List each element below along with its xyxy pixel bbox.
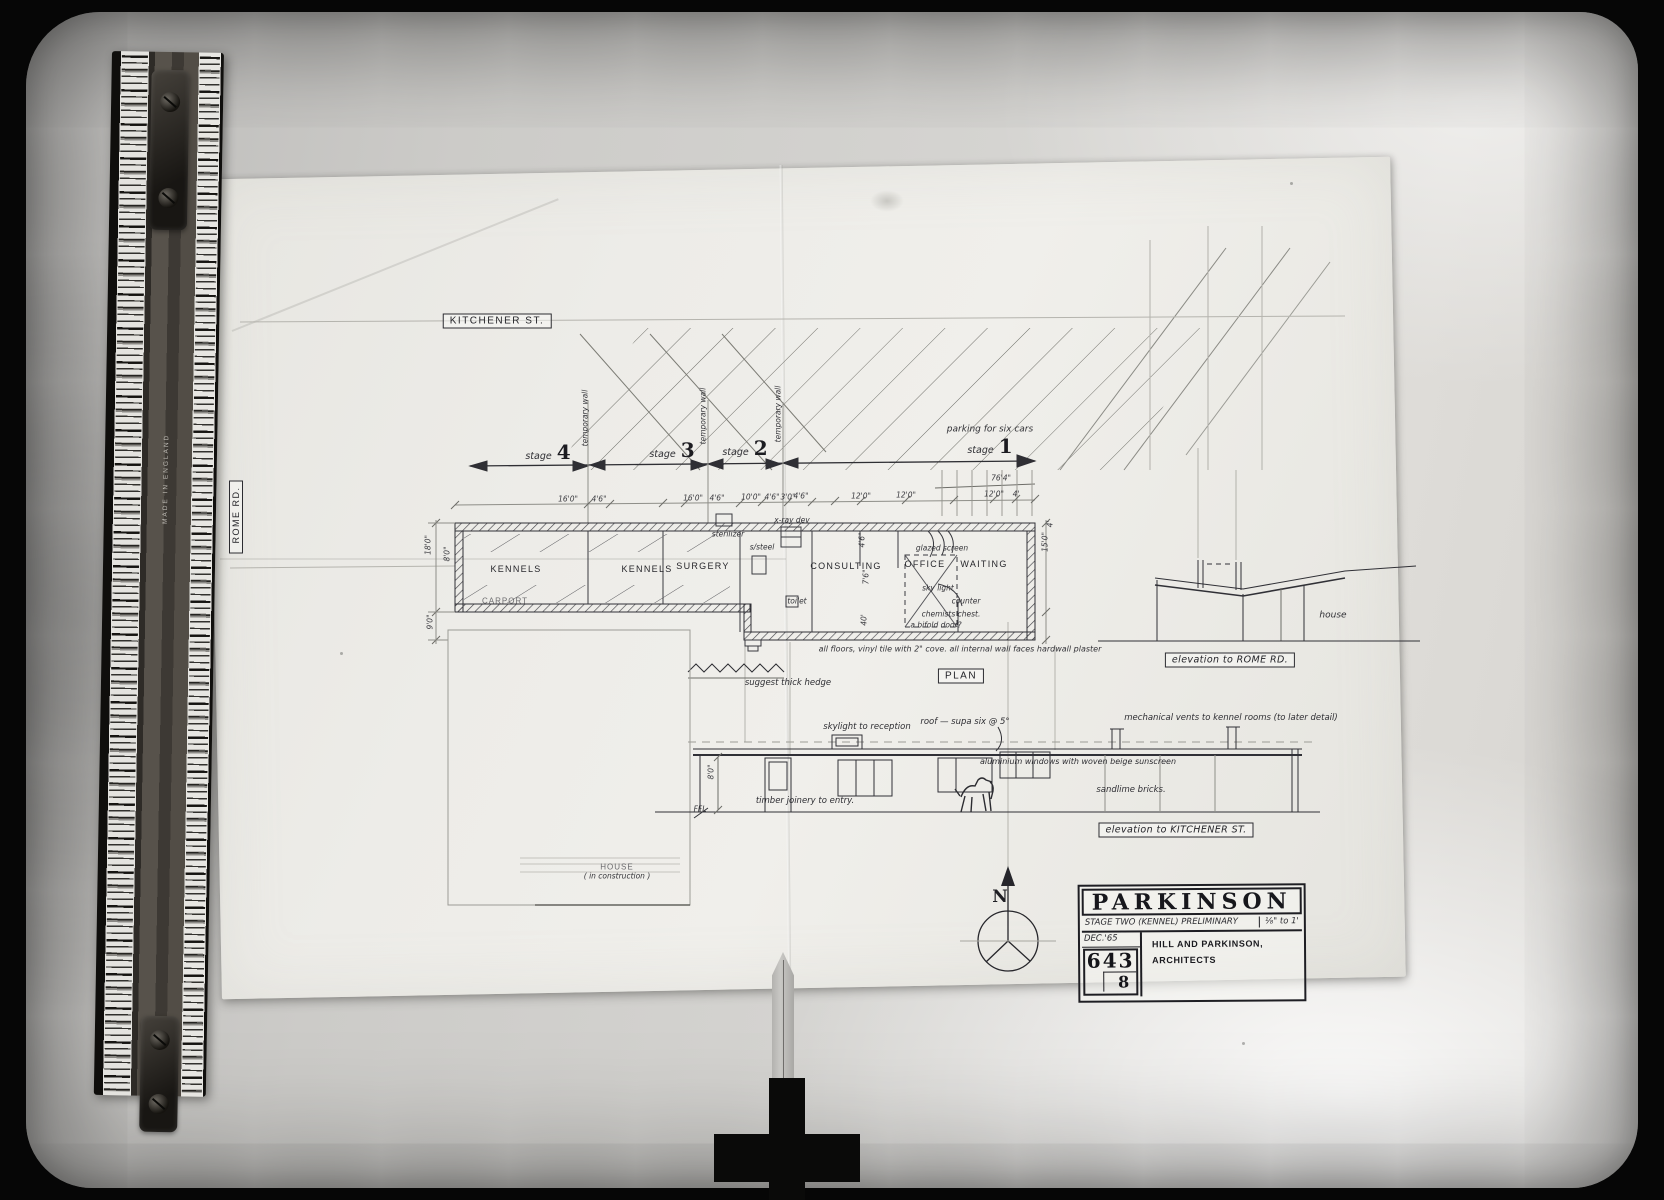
screw-icon (148, 1094, 168, 1114)
stage-number: 4 (557, 440, 571, 464)
tsquare-head-horizontal (714, 1134, 860, 1182)
parking-hatch (558, 226, 1330, 470)
fixture-skylight: sky light (922, 585, 954, 594)
kitchener-elevation-caption-text: elevation to KITCHENER ST. (1105, 825, 1246, 836)
dim-inner: 40' (860, 614, 868, 626)
room-label-waiting: WAITING (960, 560, 1007, 570)
note-windows-sunscreen: aluminium windows with woven beige sunsc… (980, 757, 1176, 767)
title-block-stage-row: STAGE TWO (KENNEL) PRELIMINARY ⅛" to 1' (1082, 914, 1302, 933)
stage-label-2: stage2 (722, 436, 767, 460)
street-label-kitchener: KITCHENER ST. (443, 314, 552, 329)
ruler-clamp-top (149, 70, 190, 231)
dim-row: 12'0" (896, 491, 916, 499)
kitchener-elevation-drawing (655, 727, 1320, 818)
carport-label: CARPORT (482, 598, 528, 607)
stage-label-3: stage3 (649, 438, 694, 462)
screw-icon (160, 92, 180, 112)
title-block-number-column: DEC.'65 643 8 (1082, 932, 1142, 996)
note-mechanical-vents: mechanical vents to kennel rooms (to lat… (1124, 713, 1337, 723)
screw-icon (150, 1030, 170, 1050)
plan-caption-text: PLAN (945, 671, 977, 682)
elevation-height-dim: 8'0" (707, 764, 715, 779)
house-under-construction-label: HOUSE ( in construction ) (584, 863, 650, 880)
title-block-sheet-number: 8 (1103, 971, 1136, 991)
fixture-bifold-door: a bifold door? (910, 622, 961, 631)
room-label-consulting: CONSULTING (810, 562, 881, 572)
title-block-job-number: 643 (1085, 950, 1136, 971)
overall-dimension: 76'4" (991, 474, 1011, 482)
floor-finish-note: all floors, vinyl tile with 2" cove. all… (819, 644, 1102, 653)
dim-left: 9'0" (426, 614, 434, 629)
stage-number: 2 (754, 436, 768, 460)
north-letter: N (992, 887, 1008, 907)
street-label-rome-text: ROME RD. (231, 487, 241, 544)
rome-elevation-caption: elevation to ROME RD. (1165, 653, 1295, 668)
street-label-rome: ROME RD. (229, 481, 243, 554)
house-label-elevation: house (1319, 611, 1346, 622)
fixture-s-steel: s/steel (750, 544, 775, 553)
north-arrow-icon (960, 866, 1056, 971)
ruler-clamp-bottom (139, 1016, 179, 1133)
title-block: PARKINSON STAGE TWO (KENNEL) PRELIMINARY… (1078, 883, 1307, 1003)
fixture-chemists-chest: chemists chest. (922, 611, 981, 620)
stage-word: stage (525, 451, 551, 462)
room-label-office: OFFICE (905, 560, 946, 570)
dim-left: 8'0" (443, 546, 451, 561)
title-block-firm: HILL AND PARKINSON, ARCHITECTS (1142, 931, 1302, 996)
ruler-ticks-left (104, 55, 148, 1091)
rome-elevation-caption-text: elevation to ROME RD. (1172, 655, 1288, 666)
title-block-firm-line2: ARCHITECTS (1152, 954, 1302, 965)
fixture-toilet: toilet (787, 598, 806, 607)
drawing-linework (0, 0, 1664, 1200)
stage-label-4: stage4 (525, 440, 570, 464)
temporary-wall-note-3: temporary wall (775, 386, 784, 443)
title-block-stage-text: STAGE TWO (KENNEL) PRELIMINARY (1085, 917, 1238, 928)
dim-row: 4'6" (793, 492, 808, 500)
title-block-date: DEC.'65 (1082, 932, 1140, 947)
fixture-sterilizer: sterilizer (712, 531, 744, 540)
dim-row: 4'6" (764, 493, 779, 501)
ffl-label: FFL (694, 806, 707, 815)
stage-number: 3 (681, 438, 695, 462)
note-roof-supasix: roof — supa six @ 5° (920, 717, 1009, 727)
note-sandlime-bricks: sandlime bricks. (1096, 785, 1165, 795)
dim-right: 15'0" (1041, 532, 1049, 552)
dim-row: 10'0" (741, 493, 761, 501)
room-label-surgery: SURGERY (676, 562, 729, 572)
parking-note: parking for six cars (947, 425, 1033, 436)
title-block-scale: ⅛" to 1' (1259, 917, 1299, 927)
title-block-project-name: PARKINSON (1082, 887, 1302, 916)
stage-number: 1 (999, 434, 1013, 458)
note-timber-joinery: timber joinery to entry. (756, 796, 854, 806)
fixture-counter: counter (952, 598, 981, 607)
rome-elevation-drawing (1098, 448, 1420, 641)
note-skylight-reception: skylight to reception (823, 722, 910, 732)
dim-left: 18'0" (424, 535, 432, 555)
stage-word: stage (649, 449, 675, 460)
dim-right: 4' (1046, 521, 1054, 528)
title-block-drawing-number: 643 8 (1083, 948, 1138, 995)
dim-row: 4' (1013, 490, 1020, 498)
temporary-wall-note-1: temporary wall (582, 390, 591, 447)
dim-row: 4'6" (709, 494, 724, 502)
house-outline (448, 630, 690, 905)
stage-word: stage (967, 445, 993, 456)
dim-inner: 4'6" (858, 532, 866, 547)
dim-row: 16'0" (558, 495, 578, 503)
dim-row: 12'0" (984, 490, 1004, 498)
fixture-xray: x-ray dev (774, 517, 809, 526)
house-label-line1: HOUSE (584, 863, 650, 872)
stage-word: stage (722, 447, 748, 458)
photo-of-architectural-drawing: KITCHENER ST. ROME RD. stage4 stage3 sta… (0, 0, 1664, 1200)
title-block-firm-line1: HILL AND PARKINSON, (1152, 938, 1302, 949)
hedge (688, 664, 784, 678)
plan-caption: PLAN (938, 669, 984, 684)
dog-figure (955, 778, 993, 812)
screw-icon (158, 188, 178, 208)
house-label-line2: ( in construction ) (584, 872, 650, 881)
room-label-kennels-1: KENNELS (490, 565, 541, 575)
ruler-origin-text: MADE IN ENGLAND (162, 404, 171, 524)
scale-ruler: MADE IN ENGLAND (94, 51, 224, 1097)
kitchener-elevation-caption: elevation to KITCHENER ST. (1098, 823, 1253, 838)
temporary-wall-note-2: temporary wall (700, 388, 709, 445)
fixture-glazed-screen: glazed screen (916, 545, 968, 554)
dim-row: 16'0" (683, 494, 703, 502)
street-label-kitchener-text: KITCHENER ST. (450, 316, 545, 327)
stage-label-1: stage1 (967, 434, 1012, 458)
dim-row: 12'0" (851, 492, 871, 500)
hedge-note: suggest thick hedge (745, 678, 831, 688)
dim-row: 4'6" (591, 495, 606, 503)
room-label-kennels-2: KENNELS (621, 565, 672, 575)
